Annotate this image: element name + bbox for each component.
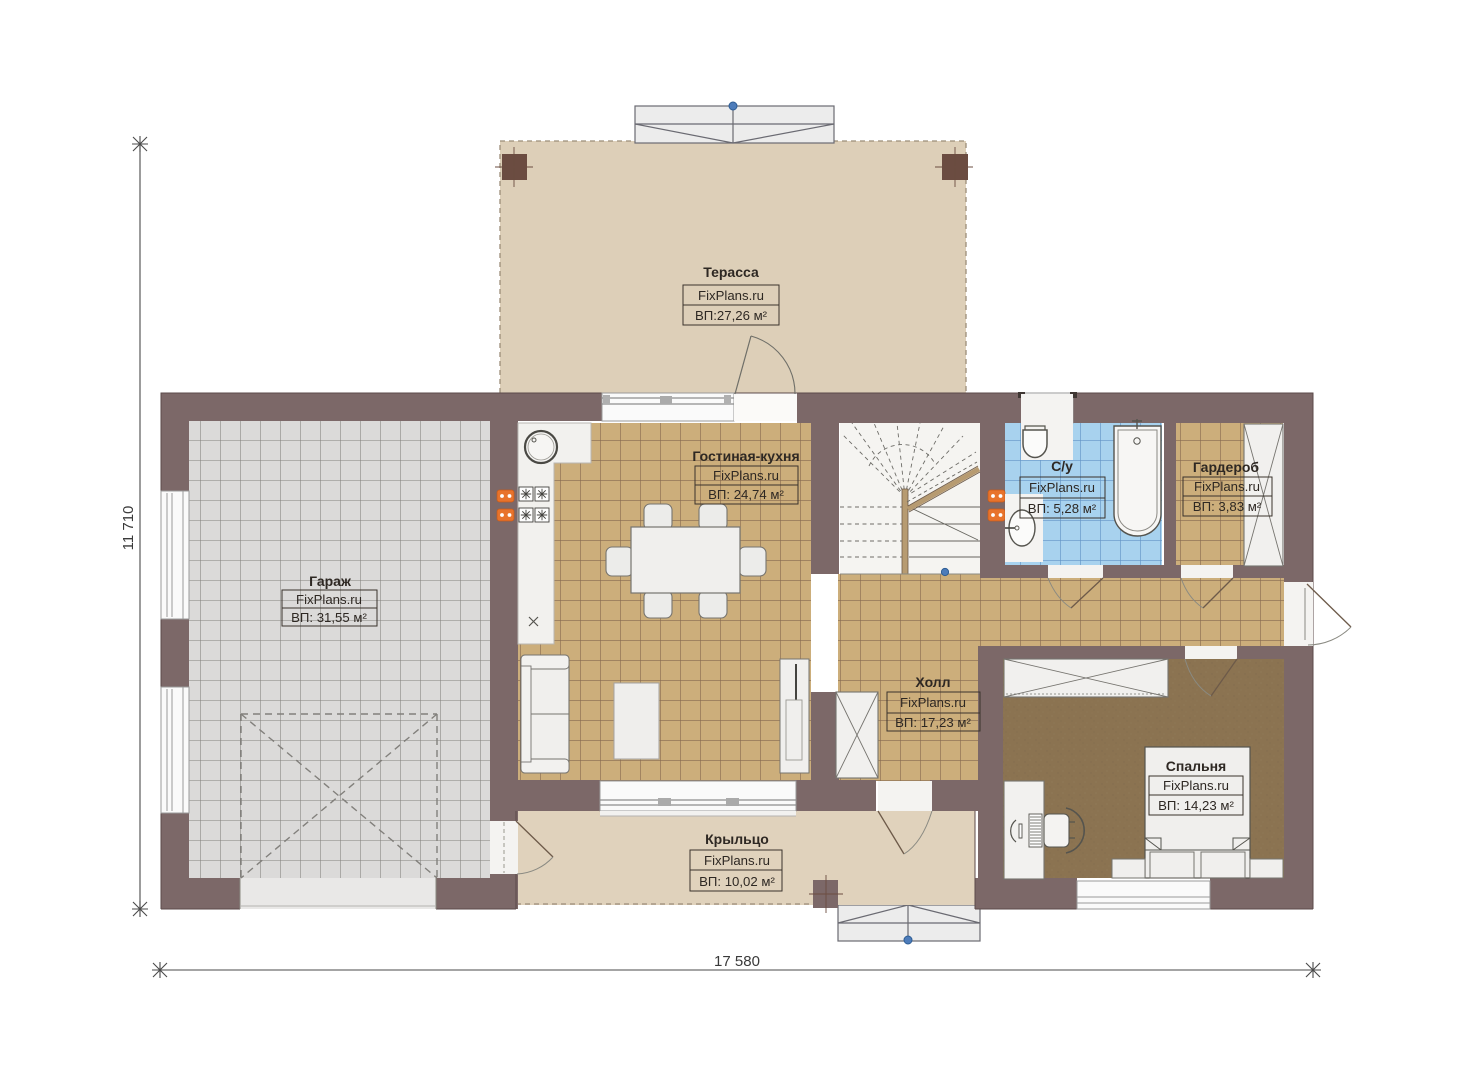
svg-text:С/у: С/у (1051, 458, 1073, 474)
svg-text:ВП: 31,55 м²: ВП: 31,55 м² (291, 610, 367, 625)
svg-text:FixPlans.ru: FixPlans.ru (296, 592, 362, 607)
svg-text:FixPlans.ru: FixPlans.ru (1194, 479, 1260, 494)
svg-text:Холл: Холл (915, 674, 950, 690)
svg-text:ВП: 17,23 м²: ВП: 17,23 м² (895, 715, 971, 730)
svg-text:Гараж: Гараж (309, 573, 352, 589)
svg-text:Гардероб: Гардероб (1193, 459, 1260, 475)
svg-text:Терасса: Терасса (703, 264, 759, 280)
svg-text:FixPlans.ru: FixPlans.ru (713, 468, 779, 483)
svg-text:ВП: 24,74 м²: ВП: 24,74 м² (708, 487, 784, 502)
svg-text:ВП: 5,28 м²: ВП: 5,28 м² (1028, 501, 1097, 516)
svg-text:FixPlans.ru: FixPlans.ru (698, 288, 764, 303)
svg-text:17 580: 17 580 (714, 953, 760, 970)
svg-text:ВП: 10,02 м²: ВП: 10,02 м² (699, 874, 775, 889)
svg-text:11 710: 11 710 (120, 506, 137, 551)
svg-text:ВП: 3,83 м²: ВП: 3,83 м² (1193, 499, 1262, 514)
svg-text:ВП:27,26 м²: ВП:27,26 м² (695, 308, 768, 323)
svg-text:FixPlans.ru: FixPlans.ru (1163, 778, 1229, 793)
svg-text:FixPlans.ru: FixPlans.ru (900, 695, 966, 710)
svg-text:Крыльцо: Крыльцо (705, 831, 769, 847)
svg-text:ВП: 14,23 м²: ВП: 14,23 м² (1158, 798, 1234, 813)
svg-text:FixPlans.ru: FixPlans.ru (1029, 480, 1095, 495)
svg-text:FixPlans.ru: FixPlans.ru (704, 853, 770, 868)
svg-text:Спальня: Спальня (1166, 758, 1226, 774)
svg-text:Гостиная-кухня: Гостиная-кухня (692, 448, 799, 464)
